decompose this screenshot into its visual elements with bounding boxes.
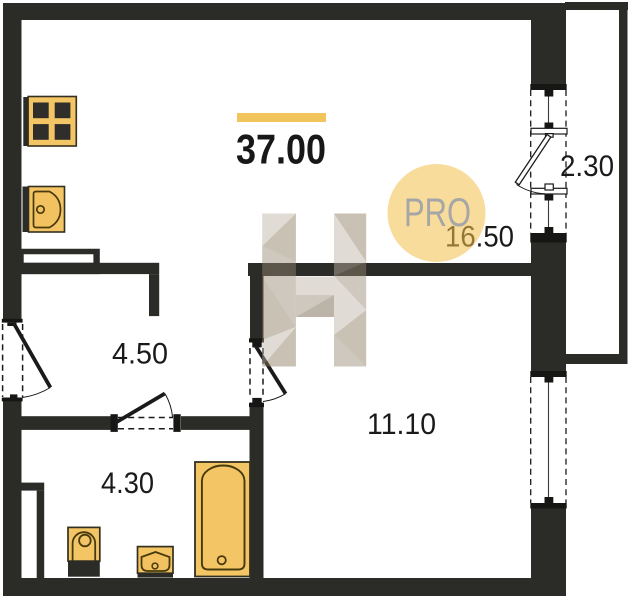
svg-text:11.10: 11.10 xyxy=(367,408,436,441)
svg-text:PRO: PRO xyxy=(404,191,471,235)
svg-text:4.30: 4.30 xyxy=(101,467,154,500)
svg-text:37.00: 37.00 xyxy=(236,126,326,173)
svg-text:4.50: 4.50 xyxy=(112,338,168,371)
svg-text:2.30: 2.30 xyxy=(560,150,614,183)
